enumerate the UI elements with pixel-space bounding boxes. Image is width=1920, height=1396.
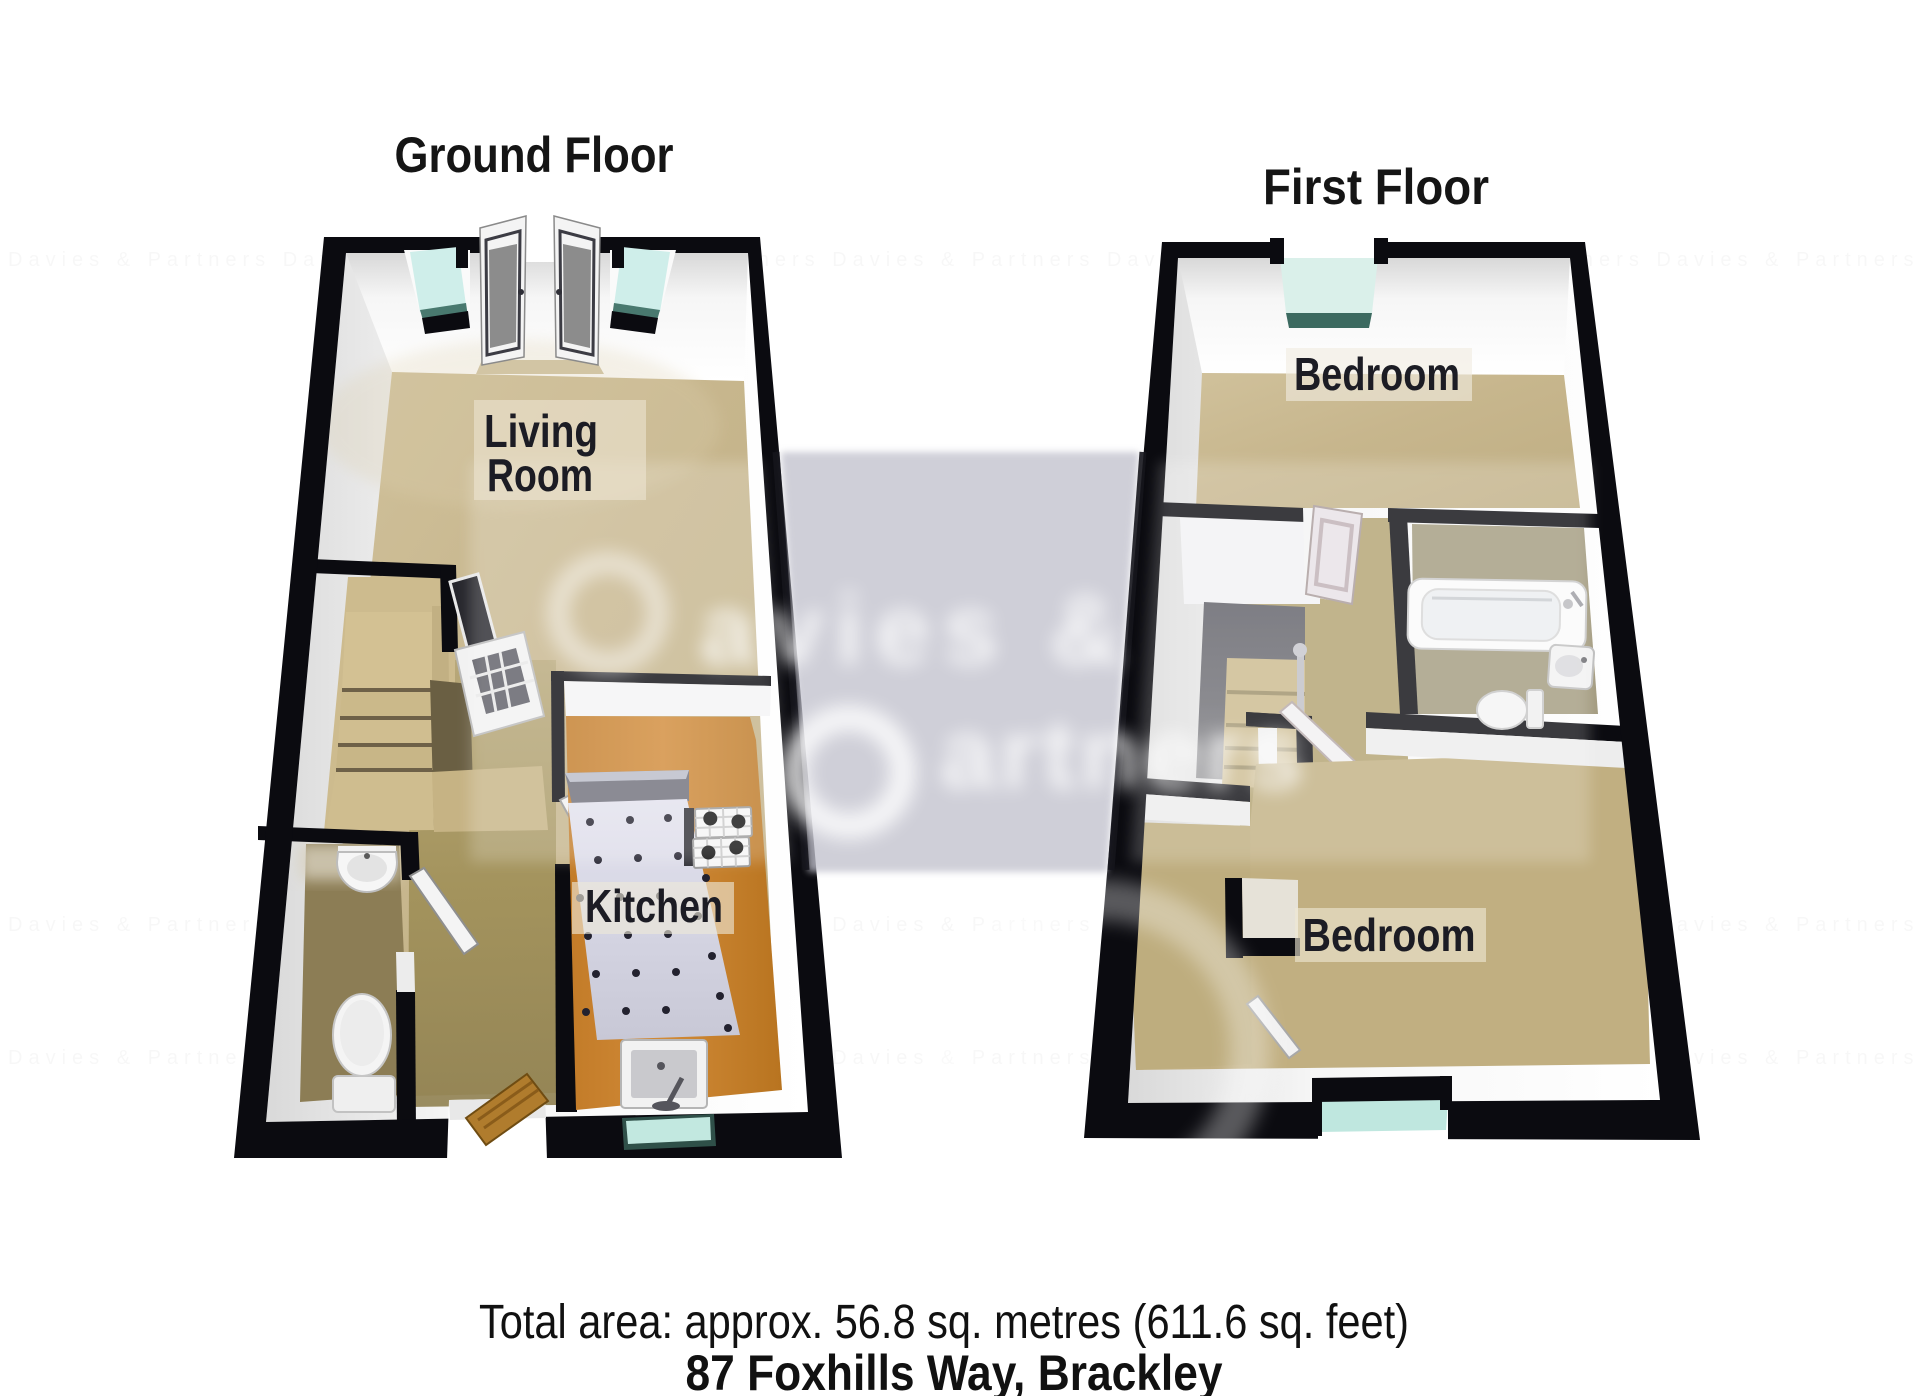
svg-text:Total area: approx. 56.8 sq. m: Total area: approx. 56.8 sq. metres (611… — [479, 1296, 1409, 1349]
svg-text:Ground Floor: Ground Floor — [395, 127, 674, 183]
svg-text:Bedroom: Bedroom — [1303, 909, 1476, 961]
svg-text:avies &: avies & — [700, 574, 1134, 686]
svg-text:Davies & Partners Davies & Par: Davies & Partners Davies & Partners Davi… — [8, 249, 1920, 271]
svg-text:artners: artners — [940, 698, 1307, 810]
svg-text:First Floor: First Floor — [1263, 159, 1489, 215]
svg-text:Bedroom: Bedroom — [1294, 348, 1460, 400]
svg-text:87 Foxhills Way, Brackley: 87 Foxhills Way, Brackley — [686, 1345, 1223, 1396]
svg-text:Room: Room — [487, 449, 593, 501]
svg-text:Kitchen: Kitchen — [585, 880, 723, 932]
